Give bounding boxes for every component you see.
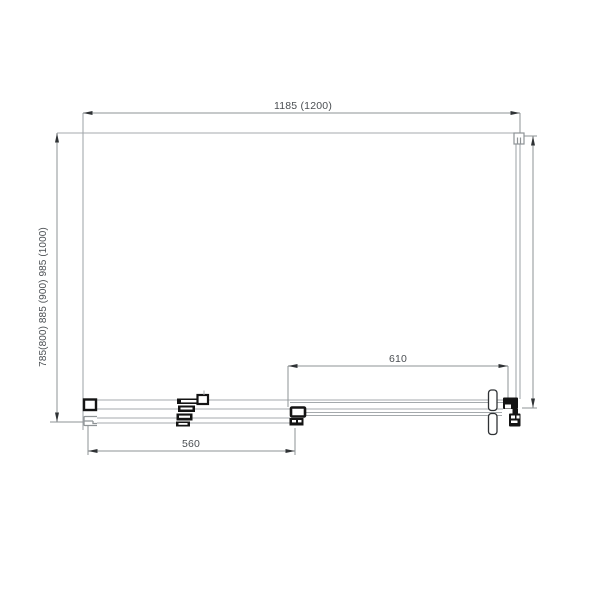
carriage-lower-slot (179, 416, 190, 418)
arrow-right-down (531, 399, 535, 409)
roller-carriage-right (503, 398, 521, 427)
dim-label-panel-width: 560 (182, 438, 200, 450)
arrow-left-down (55, 413, 59, 423)
technical-drawing-canvas: 1185 (1200) 785(800) 885 (900) 985 (1000… (0, 0, 600, 600)
dim-label-left-depth: 785(800) 885 (900) 985 (1000) (38, 227, 49, 367)
carriage-right-slot-1 (511, 416, 515, 419)
wall-bracket-left-body (84, 400, 96, 411)
roller-carriage-left (176, 395, 208, 427)
door-handle-bar-bottom (489, 414, 498, 435)
wall-profile-top-right (514, 133, 524, 144)
wall-profile-clip-left (84, 417, 97, 426)
arrow-top-right (511, 111, 521, 115)
carriage-mid-slot (181, 408, 193, 410)
guide-center-slot-1 (292, 420, 296, 422)
wall-bracket-left (84, 400, 96, 411)
arrow-top-left (83, 111, 93, 115)
glass-panel-lines (57, 113, 524, 430)
arrow-left-up (55, 133, 59, 143)
arrow-panel-left (88, 449, 98, 453)
carriage-right-notch (505, 405, 511, 409)
door-handle-bar-top (489, 390, 498, 411)
dim-label-door-opening: 610 (389, 353, 407, 365)
guide-center-slot-2 (298, 420, 302, 422)
carriage-corner-housing (198, 395, 209, 404)
carriage-foot-slot (179, 423, 188, 425)
arrow-right-up (531, 136, 535, 146)
carriage-right-slot-2 (517, 416, 520, 419)
guide-center-housing (291, 408, 305, 417)
carriage-right-lower (509, 414, 521, 427)
roller-guide-center (290, 408, 306, 426)
dimension-arrows (55, 111, 535, 453)
arrow-panel-right (286, 449, 296, 453)
dimension-lines (50, 113, 537, 455)
carriage-right-slot-3 (511, 421, 518, 424)
wall-profile-top-right-body (514, 133, 524, 144)
dim-label-top-width: 1185 (1200) (274, 100, 332, 112)
arrow-door-right (499, 364, 509, 368)
carriage-right-foot (513, 409, 519, 414)
arrow-door-left (288, 364, 298, 368)
drawing-page: 1185 (1200) 785(800) 885 (900) 985 (1000… (0, 0, 600, 600)
carriage-top-slot (181, 400, 197, 402)
wall-profile-clip-left-outline (84, 417, 97, 426)
dimension-labels: 1185 (1200) 785(800) 885 (900) 985 (1000… (38, 100, 407, 450)
